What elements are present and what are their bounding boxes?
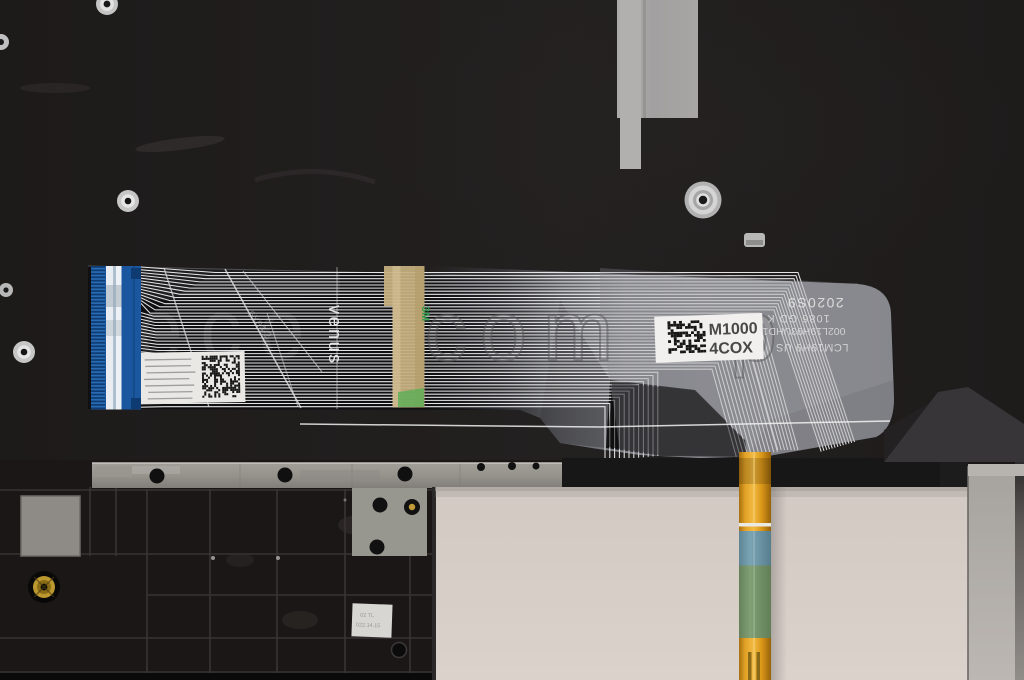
- svg-text:LCM19H9 US: LCM19H9 US: [776, 341, 849, 353]
- svg-text:e: e: [258, 282, 305, 376]
- svg-text:2020S9: 2020S9: [786, 295, 843, 311]
- svg-text:1086 GD K: 1086 GD K: [766, 312, 829, 324]
- svg-text:c: c: [425, 284, 467, 378]
- svg-text:m: m: [543, 284, 613, 378]
- svg-text:002L19H93UHD1: 002L19H93UHD1: [762, 325, 845, 337]
- svg-text:o: o: [480, 284, 527, 378]
- svg-text:M1000: M1000: [708, 320, 758, 339]
- svg-text:venus: venus: [325, 305, 345, 366]
- svg-text:4COX: 4COX: [709, 339, 753, 358]
- svg-text:02 TL: 02 TL: [360, 613, 374, 619]
- svg-text:022.14.15: 022.14.15: [356, 622, 381, 629]
